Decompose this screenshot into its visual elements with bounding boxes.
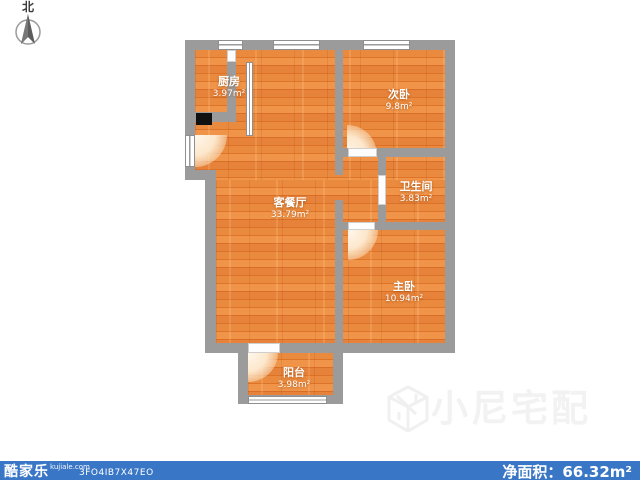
room-area: 3.83m² (400, 193, 433, 205)
plan-code: 3FO4IB7X47EO (79, 468, 154, 478)
window-balcony (248, 396, 327, 404)
kitchen-flue-block (196, 113, 212, 125)
compass: 北 (8, 1, 48, 49)
wall-balcony-left (238, 352, 248, 397)
room-name: 厨房 (213, 75, 245, 88)
room-label-living: 客餐厅 33.79m² (271, 196, 309, 221)
watermark: 小尼宅配 (385, 384, 591, 434)
net-area-value: 66.32 (562, 463, 609, 480)
room-name: 次卧 (386, 88, 413, 101)
room-label-master: 主卧 10.94m² (385, 280, 423, 305)
master-door-opening (348, 222, 375, 230)
wall-balcony-right (333, 352, 343, 397)
kitchen-sliding-door (246, 62, 253, 136)
window-bedroom2 (363, 40, 410, 50)
net-area: 净面积： 66.32 m² (502, 461, 632, 480)
room-name: 客餐厅 (271, 196, 309, 209)
window-kitchen (218, 40, 243, 50)
watermark-text: 小尼宅配 (431, 385, 591, 433)
brand-logo-text: 酷家乐 (4, 461, 49, 480)
footer-bar: 酷家乐 kujiale.com 3FO4IB7X47EO 净面积： 66.32 … (0, 461, 640, 480)
room-label-kitchen: 厨房 3.97m² (213, 75, 245, 100)
balcony-door-opening (248, 343, 280, 353)
room-area: 33.79m² (271, 209, 309, 221)
compass-north-label: 北 (8, 1, 48, 13)
watermark-cube-icon (385, 384, 431, 434)
room-area: 3.97m² (213, 88, 245, 100)
bathroom-door-opening (378, 175, 386, 205)
room-area: 10.94m² (385, 293, 423, 305)
window-living (273, 40, 320, 50)
room-name: 主卧 (385, 280, 423, 293)
room-label-bedroom2: 次卧 9.8m² (386, 88, 413, 113)
wall-living-bedroom2 (335, 50, 343, 175)
wall-left-lower (205, 170, 216, 352)
compass-arrow-icon (10, 13, 46, 49)
bedroom2-door-opening (348, 148, 377, 157)
floorplan-screen: 北 厨房 3.97m² 次 (0, 0, 640, 480)
net-area-unit: m² (610, 463, 632, 480)
net-area-label: 净面积： (502, 461, 562, 480)
room-name: 阳台 (278, 366, 310, 379)
room-label-balcony: 阳台 3.98m² (278, 366, 310, 391)
room-area: 9.8m² (386, 101, 413, 113)
room-area: 3.98m² (278, 379, 310, 391)
wall-right (445, 40, 455, 353)
room-label-bathroom: 卫生间 3.83m² (400, 180, 433, 205)
room-name: 卫生间 (400, 180, 433, 193)
kitchen-door-opening (227, 50, 236, 62)
entry-door-opening (185, 135, 195, 167)
